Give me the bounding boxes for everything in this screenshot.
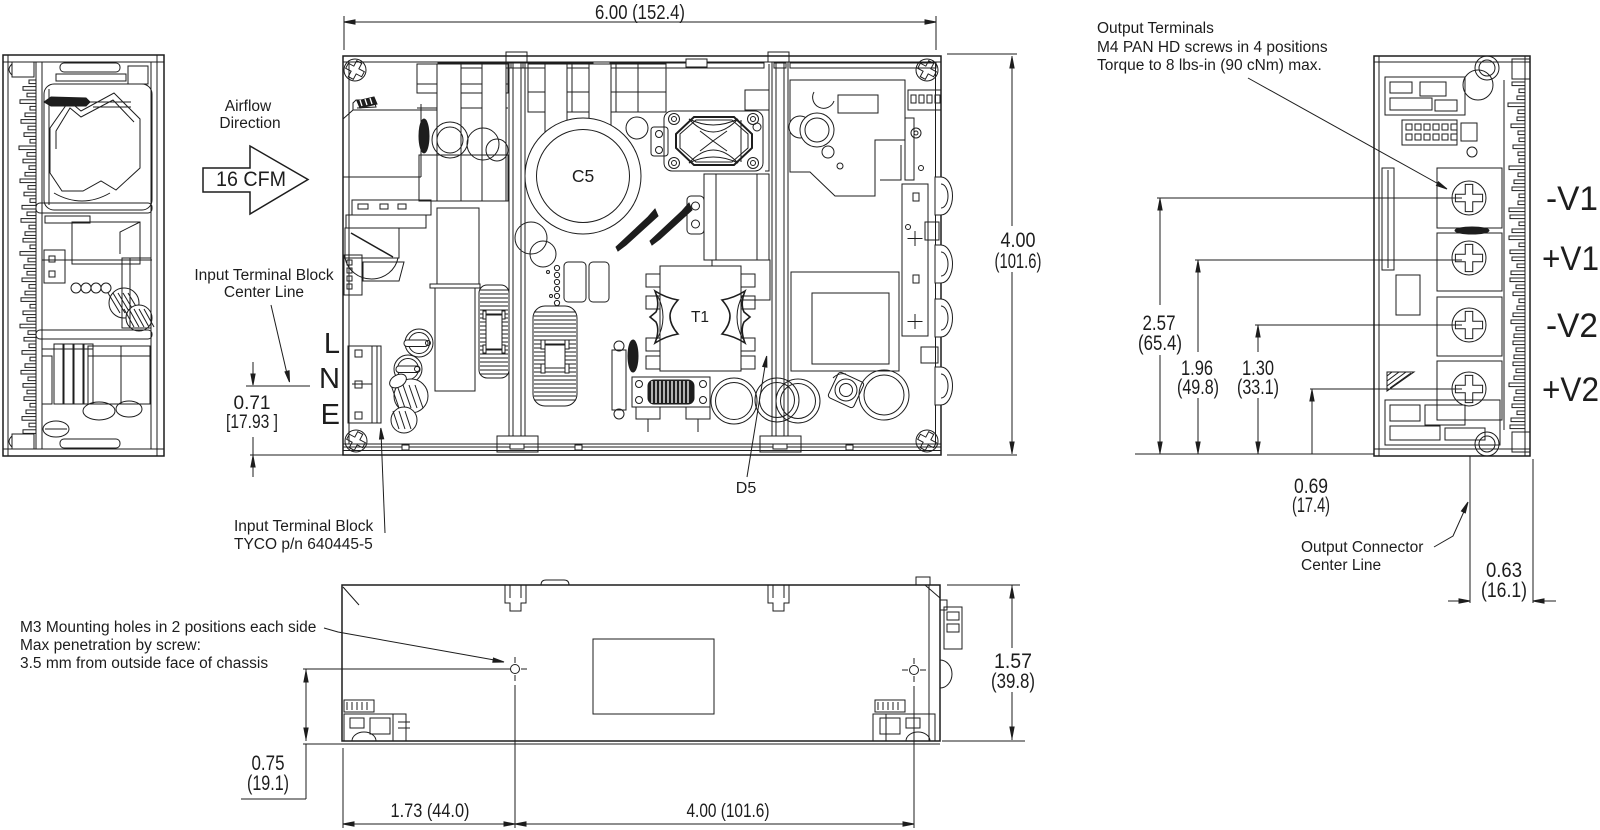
svg-text:(16.1): (16.1): [1481, 579, 1527, 602]
svg-text:E: E: [321, 399, 340, 431]
svg-text:Max penetration by screw:: Max penetration by screw:: [20, 637, 201, 654]
svg-text:Torque to 8 lbs-in (90 cNm) ma: Torque to 8 lbs-in (90 cNm) max.: [1097, 57, 1322, 74]
svg-text:6.00 (152.4): 6.00 (152.4): [595, 2, 685, 24]
svg-text:(39.8): (39.8): [991, 670, 1035, 693]
svg-text:M4 PAN HD screws in 4 position: M4 PAN HD screws in 4 positions: [1097, 39, 1328, 56]
svg-text:-V1: -V1: [1546, 180, 1598, 218]
svg-text:4.00 (101.6): 4.00 (101.6): [687, 801, 770, 822]
svg-text:+V1: +V1: [1542, 240, 1599, 278]
svg-text:Output Connector: Output Connector: [1301, 539, 1423, 556]
svg-text:(17.4): (17.4): [1292, 494, 1330, 517]
svg-text:-V2: -V2: [1546, 307, 1598, 345]
svg-text:Airflow: Airflow: [225, 98, 272, 115]
svg-text:+V2: +V2: [1542, 371, 1599, 409]
svg-text:Input Terminal Block: Input Terminal Block: [194, 267, 334, 284]
svg-text:(65.4): (65.4): [1138, 332, 1182, 355]
svg-text:C5: C5: [572, 166, 594, 186]
svg-text:4.00: 4.00: [1001, 229, 1036, 252]
svg-text:Input Terminal Block: Input Terminal Block: [234, 518, 374, 535]
svg-text:Center Line: Center Line: [1301, 557, 1381, 574]
svg-text:[17.93 ]: [17.93 ]: [226, 412, 278, 433]
svg-text:TYCO p/n 640445-5: TYCO p/n 640445-5: [234, 536, 373, 553]
svg-text:L: L: [324, 328, 340, 360]
svg-text:(101.6): (101.6): [995, 250, 1042, 273]
svg-text:3.5 mm from outside face of ch: 3.5 mm from outside face of chassis: [20, 655, 268, 672]
svg-text:Center Line: Center Line: [224, 284, 304, 301]
svg-text:0.71: 0.71: [234, 393, 271, 414]
svg-text:T1: T1: [691, 309, 709, 326]
svg-text:Direction: Direction: [219, 115, 280, 132]
svg-text:1.73 (44.0): 1.73 (44.0): [391, 801, 470, 822]
svg-text:16 CFM: 16 CFM: [216, 168, 286, 191]
svg-text:M3 Mounting holes in 2 positio: M3 Mounting holes in 2 positions each si…: [20, 619, 316, 636]
svg-text:D5: D5: [736, 480, 757, 497]
svg-text:Output Terminals: Output Terminals: [1097, 20, 1214, 37]
svg-text:(33.1): (33.1): [1237, 376, 1279, 399]
svg-text:(49.8): (49.8): [1177, 376, 1219, 399]
svg-text:N: N: [319, 363, 340, 395]
svg-text:(19.1): (19.1): [247, 772, 289, 795]
